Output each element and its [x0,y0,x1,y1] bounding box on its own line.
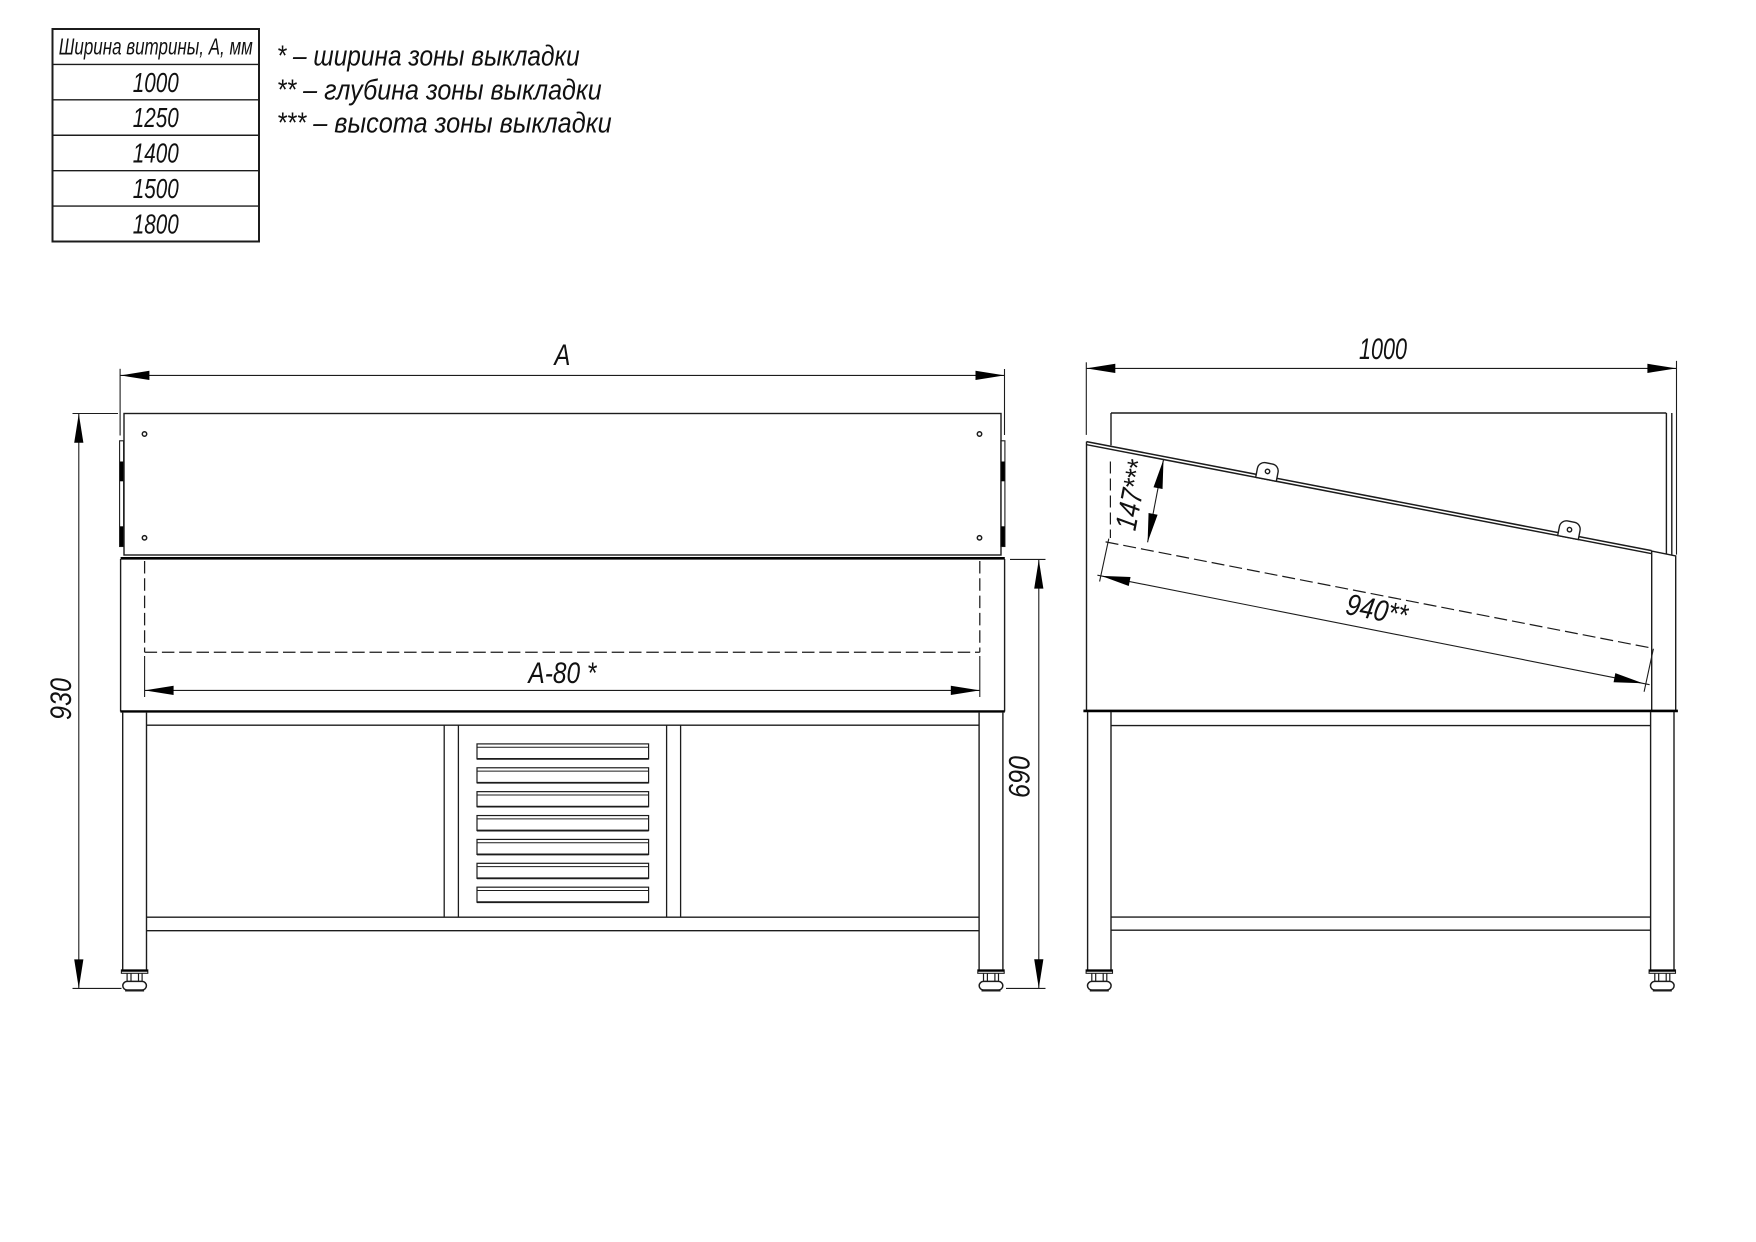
svg-text:A: A [553,339,571,372]
svg-text:A-80 *: A-80 * [527,657,598,690]
svg-text:1400: 1400 [133,138,179,169]
svg-text:690: 690 [1003,756,1036,798]
svg-text:Ширина витрины, А, мм: Ширина витрины, А, мм [59,34,253,60]
svg-text:1500: 1500 [133,173,179,204]
svg-text:* – ширина зоны выкладки: * – ширина зоны выкладки [277,41,580,73]
svg-text:1000: 1000 [133,67,179,98]
svg-text:1800: 1800 [133,208,179,239]
svg-text:*** – высота зоны выкладки: *** – высота зоны выкладки [277,108,612,140]
svg-text:** – глубина зоны выкладки: ** – глубина зоны выкладки [277,75,602,107]
svg-text:1250: 1250 [133,102,179,133]
svg-text:930: 930 [45,678,78,720]
svg-text:1000: 1000 [1359,333,1407,366]
